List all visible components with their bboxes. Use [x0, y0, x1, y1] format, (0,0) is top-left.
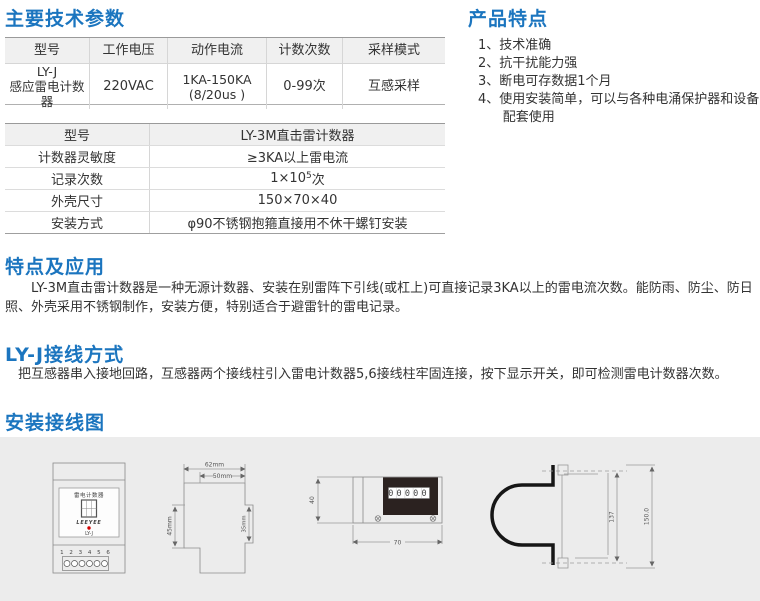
feature-item-4: 4、使用安装简单，可以与各种电涌保护器和设备配套使用 [478, 91, 760, 127]
section-title-tech-params: 主要技术参数 [5, 4, 125, 31]
diagram-profile-dimensions: 62mm 50mm 45mm 35mm [165, 455, 287, 583]
screw-icon-right [430, 516, 436, 522]
section-title-install-diagram: 安装接线图 [5, 408, 105, 435]
table1-header-model: 型号 [5, 38, 90, 63]
diagram-clamp: 137 150.0 [488, 455, 663, 580]
table-technical-parameters: 型号 工作电压 动作电流 计数次数 采样模式 LY-J 感应雷电计数器 220V… [5, 37, 445, 105]
table2-row-record-count: 记录次数 1×105次 [5, 168, 445, 190]
terminal-numbers: 1 2 3 4 5 6 [60, 550, 112, 556]
table1-header-voltage: 工作电压 [90, 38, 168, 63]
table1-cell-model: LY-J 感应雷电计数器 [5, 64, 90, 109]
dim-150: 150.0 [644, 508, 651, 525]
table1-header-count: 计数次数 [267, 38, 343, 63]
bracket-top [558, 465, 568, 475]
table2-header-value: LY-3M直击雷计数器 [150, 124, 445, 145]
dim-45mm: 45mm [167, 516, 174, 535]
counter-display: 00000 [388, 489, 430, 499]
section-title-features-application: 特点及应用 [5, 252, 105, 279]
table2-row-mounting: 安装方式 φ90不锈钢抱箍直接用不休干螺钉安装 [5, 212, 445, 233]
counter-window-icon [82, 500, 97, 517]
dim-70: 70 [394, 540, 402, 547]
dim-137: 137 [609, 511, 616, 523]
dim-35mm: 35mm [242, 515, 248, 532]
feature-item-3: 3、断电可存数据1个月 [478, 73, 760, 91]
table2-cell-record-count: 1×105次 [150, 168, 445, 189]
table1-cell-current: 1KA-150KA (8/20us ) [168, 64, 267, 109]
table1-cell-sampling: 互感采样 [343, 64, 445, 109]
clamp-outline [492, 465, 553, 565]
dim-62mm: 62mm [205, 462, 224, 469]
diagram-side-view: 00000 40 70 [305, 458, 470, 553]
power-indicator-dot [87, 526, 90, 529]
dim-40: 40 [309, 496, 316, 504]
paragraph-features-application: LY-3M直击雷计数器是一种无源计数器、安装在别雷阵下引线(或杠上)可直接记录3… [5, 279, 757, 317]
feature-item-2: 2、抗干扰能力强 [478, 55, 760, 73]
table1-header-sampling: 采样模式 [343, 38, 445, 63]
model-label: LY-J [85, 531, 93, 537]
device-label: 雷电计数器 [74, 491, 104, 499]
feature-item-1: 1、技术准确 [478, 37, 760, 55]
table1-cell-count: 0-99次 [267, 64, 343, 109]
section-title-wiring-method: LY-J接线方式 [5, 340, 124, 367]
dim-50mm: 50mm [213, 473, 232, 480]
datasheet-page: 主要技术参数 产品特点 特点及应用 LY-J接线方式 安装接线图 1、技术准确 … [0, 0, 760, 601]
table1-header-row: 型号 工作电压 动作电流 计数次数 采样模式 [5, 38, 445, 64]
brand-label: LEEYEE [76, 520, 101, 526]
section-title-product-features: 产品特点 [468, 4, 548, 31]
diagram-front-view: 雷电计数器 LEEYEE LY-J 1 2 3 4 5 6 [40, 455, 155, 585]
table2-header-label: 型号 [5, 124, 150, 145]
table2-row-case-size: 外壳尺寸 150×70×40 [5, 190, 445, 212]
table1-header-current: 动作电流 [168, 38, 267, 63]
terminal-block [63, 557, 109, 571]
table-ly3m-specs: 型号 LY-3M直击雷计数器 计数器灵敏度 ≥3KA以上雷电流 记录次数 1×1… [5, 123, 445, 234]
table2-row-sensitivity: 计数器灵敏度 ≥3KA以上雷电流 [5, 146, 445, 168]
paragraph-wiring-method: 把互感器串入接地回路，互感器两个接线柱引入雷电计数器5,6接线柱牢固连接，按下显… [5, 365, 757, 384]
table1-data-row: LY-J 感应雷电计数器 220VAC 1KA-150KA (8/20us ) … [5, 64, 445, 104]
table1-cell-voltage: 220VAC [90, 64, 168, 109]
table2-header-row: 型号 LY-3M直击雷计数器 [5, 124, 445, 146]
product-feature-list: 1、技术准确 2、抗干扰能力强 3、断电可存数据1个月 4、使用安装简单，可以与… [478, 37, 760, 127]
screw-icon-left [375, 516, 381, 522]
